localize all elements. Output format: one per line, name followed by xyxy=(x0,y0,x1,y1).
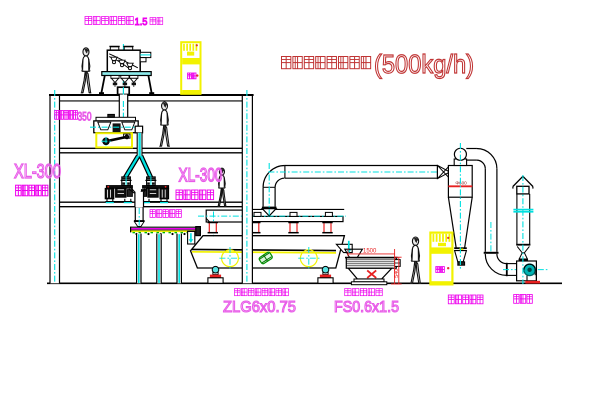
svg-text:1500: 1500 xyxy=(363,249,377,255)
svg-text:FS0.6x1.5: FS0.6x1.5 xyxy=(334,299,399,316)
svg-text:350: 350 xyxy=(78,111,92,123)
svg-text:XL-300: XL-300 xyxy=(179,164,223,186)
svg-text:1.5: 1.5 xyxy=(135,16,148,28)
svg-text:540: 540 xyxy=(394,269,400,278)
svg-text:Φ600: Φ600 xyxy=(455,181,467,186)
svg-text:ZLG6x0.75: ZLG6x0.75 xyxy=(223,299,296,316)
svg-text:XL-300: XL-300 xyxy=(14,160,61,183)
svg-text:(500kg/h): (500kg/h) xyxy=(374,49,474,79)
